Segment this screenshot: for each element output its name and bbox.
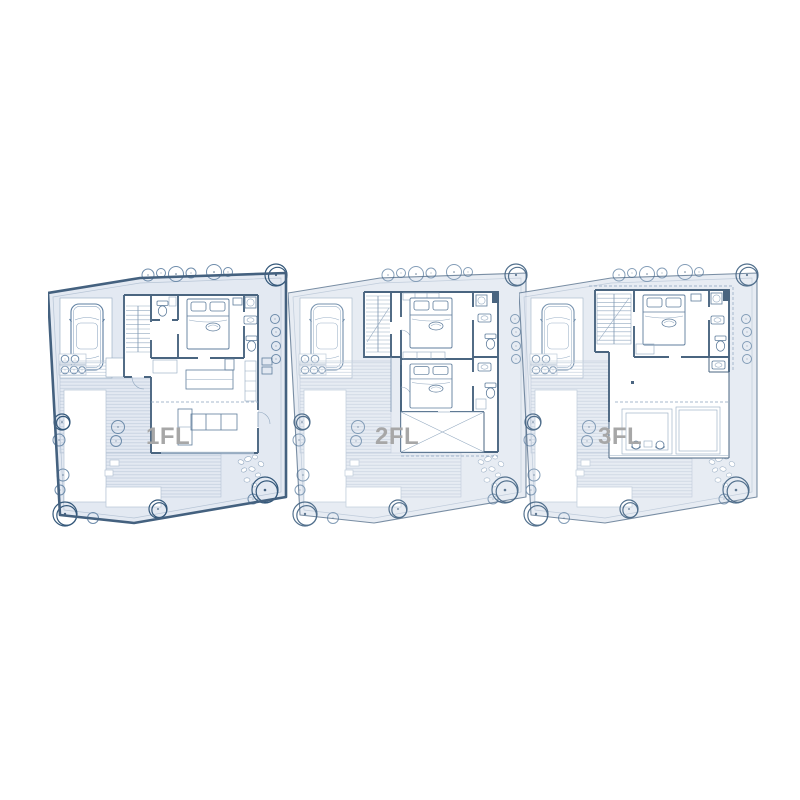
floor-plan-1fl: 1FL [48,262,293,552]
floor-plan-3fl: 3FL [519,262,764,552]
bed-icon [643,295,685,345]
floor-label-3fl: 3FL [598,423,642,450]
bed-icon [410,364,452,408]
duct-shaft [492,293,499,303]
floor-label-2fl: 2FL [375,423,419,450]
duct-shaft [723,291,730,301]
column-mark [631,381,634,384]
bed-icon [410,298,452,348]
floor-plan-2fl: 2FL [288,262,533,552]
floor-plans-figure: 1FL [0,0,800,800]
floor-label-1fl: 1FL [146,423,190,450]
bed-icon [187,299,229,349]
